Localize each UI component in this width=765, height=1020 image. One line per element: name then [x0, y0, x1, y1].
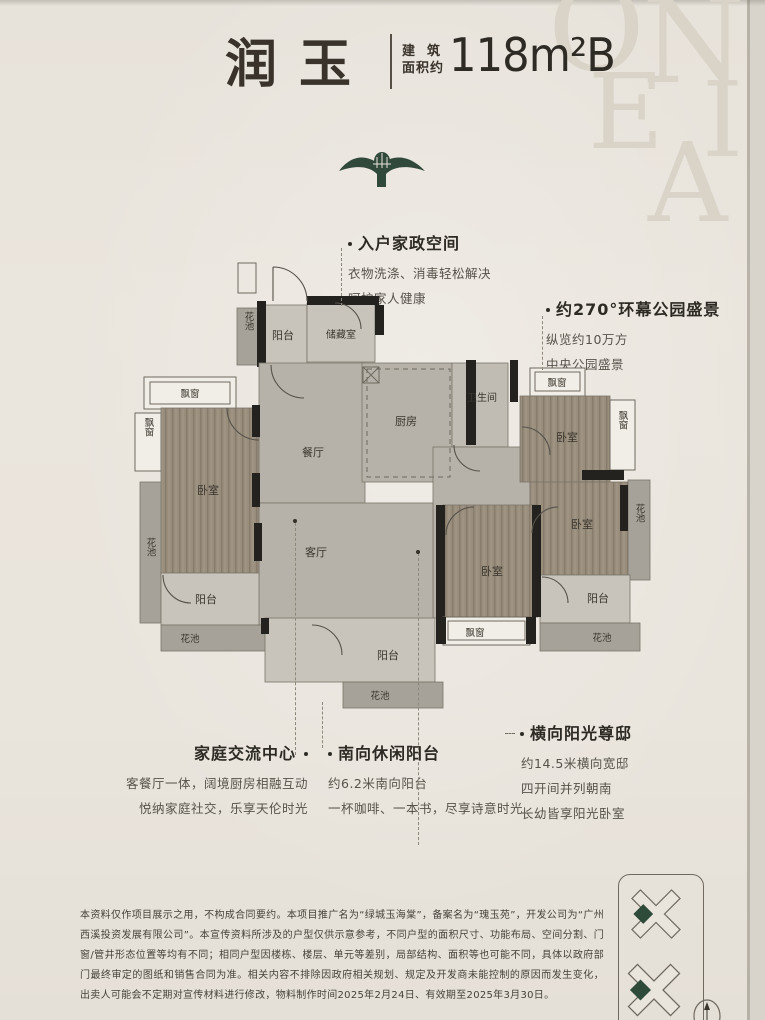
room-label-flower-bottom-center: 花池: [370, 690, 390, 702]
annotation-line: 约6.2米南向阳台: [328, 771, 528, 796]
wall: [257, 301, 266, 367]
bullet-icon: [520, 732, 524, 736]
wall: [620, 485, 628, 531]
photo-edge-line: [747, 0, 750, 1020]
room-label-bay-bottom: 飘窗: [465, 627, 484, 639]
room-label-flower-left: 花池: [145, 537, 157, 557]
key-plan: [612, 870, 724, 1020]
room-label-bay-right: 飘窗: [617, 411, 629, 431]
room-label-bay-top-left: 飘窗: [180, 388, 199, 400]
bullet-icon: [348, 242, 352, 246]
room-label-balcony-left: 阳台: [195, 592, 217, 606]
shaft: [238, 263, 256, 293]
leader-dot: [293, 519, 297, 523]
room-label-balcony-south: 阳台: [377, 648, 399, 662]
annotation-line: 悦纳家庭社交，乐享天伦时光: [86, 796, 308, 821]
room-label-kitchen: 厨房: [395, 415, 417, 428]
room-balcony-right: [540, 575, 630, 623]
room-label-bedroom-left: 卧室: [197, 483, 219, 497]
brochure-page: O N E I A 润玉 建筑 面积约 118m²B 入户家政空间 衣物洗涤、消…: [0, 0, 765, 1020]
room-flower-right: [628, 480, 650, 580]
room-living: [259, 503, 433, 625]
annotation-title: 南向休闲阳台: [328, 740, 528, 764]
annotation-line: 客餐厅一体，阔境厨房相融互动: [86, 771, 308, 796]
annotation-line: 约14.5米横向宽邸: [521, 751, 715, 776]
room-label-flower-top: 花池: [243, 311, 255, 331]
annotation-title: 入户家政空间: [348, 230, 491, 254]
bullet-icon: [328, 752, 332, 756]
wall: [510, 360, 518, 402]
leader-park: [542, 316, 543, 370]
room-label-balcony-right: 阳台: [587, 591, 609, 605]
room-label-flower-bottom-left: 花池: [180, 633, 200, 645]
disclaimer-text: 本资料仅作项目展示之用，不构成合同要约。本项目推广名为“绿城玉海棠”，备案名为“…: [80, 906, 604, 1006]
wall: [436, 617, 446, 644]
header-divider: [390, 34, 392, 89]
leader-south-balcony: [322, 702, 323, 748]
annotation-title: 家庭交流中心: [86, 740, 308, 764]
annotation-family-center: 家庭交流中心 客餐厅一体，阔境厨房相融互动 悦纳家庭社交，乐享天伦时光: [86, 740, 308, 821]
wall: [375, 305, 384, 335]
room-flower-bottom-right: [540, 623, 640, 651]
annotation-south-balcony: 南向休闲阳台 约6.2米南向阳台 一杯咖啡、一本书，尽享诗意时光: [328, 740, 528, 821]
room-label-entry-balcony: 阳台: [272, 328, 294, 342]
room-label-bedroom-bottom: 卧室: [481, 564, 503, 578]
room-label-bedroom-top-right: 卧室: [556, 430, 578, 444]
room-balcony-south: [265, 618, 435, 682]
wall: [532, 505, 541, 617]
area-prefix-line1: 建筑: [402, 43, 452, 60]
wall: [252, 405, 260, 437]
wall: [436, 505, 445, 617]
room-label-flower-bottom-right: 花池: [592, 632, 612, 644]
wall: [261, 618, 269, 634]
leader-family: [295, 523, 296, 755]
dash-icon: [505, 733, 515, 734]
room-label-bay-top-right: 飘窗: [547, 377, 566, 389]
annotation-line: 长幼皆享阳光卧室: [521, 801, 715, 826]
area-value: 118m²B: [449, 28, 615, 82]
north-compass-icon: [692, 996, 722, 1020]
room-label-flower-right: 花池: [634, 503, 646, 523]
room-label-bathroom: 卫生间: [467, 391, 497, 404]
room-dining: [259, 363, 365, 503]
wall: [254, 523, 262, 561]
room-label-bay-left: 飘窗: [143, 418, 155, 438]
room-bathroom: [452, 363, 508, 447]
room-label-living: 客厅: [305, 545, 327, 559]
room-label-bedroom-right: 卧室: [571, 517, 593, 531]
room-label-dining: 餐厅: [302, 445, 324, 459]
building-footprint-icon: [624, 882, 688, 946]
brand-arch-logo-icon: [336, 137, 428, 191]
annotation-sunshine: 横向阳光尊邸 约14.5米横向宽邸 四开间并列朝南 长幼皆享阳光卧室: [505, 720, 715, 826]
floor-plan: 花池 阳台 储藏室 飘窗 飘窗 卧室 餐厅 厨房 卫生间 飘窗 卧室 飘窗 客厅…: [130, 255, 690, 730]
room-bedroom-bottom: [443, 505, 538, 617]
area-prefix-line2: 面积约: [402, 60, 452, 77]
annotation-line: 四开间并列朝南: [521, 776, 715, 801]
wall: [526, 617, 536, 644]
bullet-icon: [304, 752, 308, 756]
wall: [252, 473, 260, 507]
annotation-line: 一杯咖啡、一本书，尽享诗意时光: [328, 796, 528, 821]
wall: [582, 470, 624, 480]
leader-entry: [341, 248, 342, 306]
plan-title: 润玉: [225, 22, 373, 97]
room-flower-bottom-center: [343, 682, 443, 708]
photo-edge-strip: [750, 0, 765, 1020]
leader-dot: [416, 550, 420, 554]
door-arc: [273, 267, 307, 301]
watermark-letter: A: [648, 128, 727, 238]
leader-divider: [418, 553, 419, 845]
area-prefix: 建筑 面积约: [402, 43, 452, 77]
room-label-storage: 储藏室: [326, 328, 356, 341]
building-footprint-icon: [620, 956, 688, 1020]
